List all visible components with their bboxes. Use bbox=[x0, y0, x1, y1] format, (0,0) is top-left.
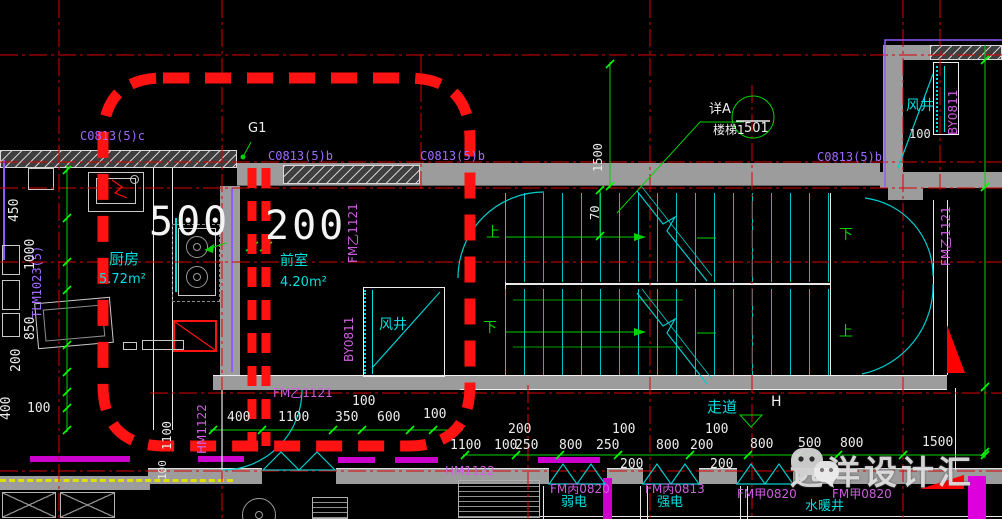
room-anteroom-area: 4.20m² bbox=[280, 276, 327, 289]
door-code: FM甲0820 bbox=[737, 488, 797, 500]
corridor-mark: H bbox=[771, 395, 782, 409]
louver-code: BY0811 bbox=[947, 90, 959, 135]
highlight-dim-200: 200 bbox=[265, 206, 346, 246]
dim: 400 bbox=[227, 411, 250, 424]
stair-break-line bbox=[637, 293, 707, 384]
room-plumb-shaft: 水暖井 bbox=[805, 500, 844, 513]
callout-target: 楼梯1 bbox=[713, 124, 745, 136]
door-code: FM丙0820 bbox=[550, 483, 610, 495]
stair-break-line bbox=[637, 191, 707, 281]
callout-detail: 详A bbox=[709, 103, 731, 116]
room-anteroom: 前室 bbox=[280, 254, 308, 268]
door-code: HM1122 bbox=[445, 465, 495, 477]
door-code: HM1122 bbox=[196, 404, 208, 454]
wechat-icon bbox=[790, 446, 840, 490]
floor-plan-canvas: G1 C0813(5)c C0813(5)b C0813(5)b C0813(5… bbox=[0, 0, 1002, 519]
dim: 800 bbox=[559, 439, 582, 452]
dim: 100 bbox=[423, 408, 446, 421]
dim: 200 bbox=[508, 423, 531, 436]
window-code: C0813(5)c bbox=[80, 130, 145, 142]
dim: 450 bbox=[8, 199, 21, 222]
window-code: C0813(5)b bbox=[817, 151, 882, 163]
dim: 1100 bbox=[161, 421, 173, 450]
dim: 1000 bbox=[24, 239, 37, 270]
g1-label: G1 bbox=[248, 122, 266, 135]
stair-down-label: 下 bbox=[839, 228, 853, 242]
dim: 250 bbox=[596, 439, 619, 452]
dim: 100 bbox=[612, 423, 635, 436]
dim: 800 bbox=[656, 439, 679, 452]
dim: 200 bbox=[620, 458, 643, 471]
dim: 850 bbox=[24, 317, 37, 340]
dim: 200 bbox=[710, 458, 733, 471]
dim: 100 bbox=[157, 460, 168, 480]
dim: 100 bbox=[909, 128, 931, 140]
louver-code: BY0811 bbox=[343, 317, 355, 362]
highlight-dim-500: 500 bbox=[149, 202, 230, 242]
room-kitchen-area: 5.72m² bbox=[99, 273, 146, 286]
room-shaft-top: 风井 bbox=[906, 99, 934, 113]
dim: 1100 bbox=[450, 439, 481, 452]
dim: 100 bbox=[352, 395, 375, 408]
window-code: C0813(5)b bbox=[420, 150, 485, 162]
callout-sheet: 501 bbox=[744, 122, 769, 135]
stair-down-label: 下 bbox=[483, 321, 497, 335]
dim: 400 bbox=[0, 397, 13, 420]
room-kitchen: 厨房 bbox=[109, 252, 139, 267]
dim: 100 bbox=[27, 402, 50, 415]
door-code: FM丙0813 bbox=[645, 483, 705, 495]
door-code: FM乙1121 bbox=[347, 203, 359, 263]
door-code: FM乙1121 bbox=[940, 206, 952, 266]
dim: 350 bbox=[335, 411, 358, 424]
dim: 1500 bbox=[592, 143, 604, 172]
stair-up-label: 上 bbox=[486, 226, 500, 240]
window-code: C0813(5)b bbox=[268, 150, 333, 162]
dim: 100 bbox=[494, 439, 517, 452]
dim: 1100 bbox=[278, 411, 309, 424]
room-weak-elec: 弱电 bbox=[561, 496, 587, 509]
dim: 200 bbox=[690, 439, 713, 452]
room-shaft-left: 风井 bbox=[379, 318, 407, 332]
watermark: 远洋设计汇 bbox=[790, 446, 975, 494]
dim: 800 bbox=[750, 438, 773, 451]
room-corridor: 走道 bbox=[707, 400, 737, 415]
dim: 100 bbox=[705, 423, 728, 436]
dim: 200 bbox=[10, 349, 23, 372]
room-strong-elec: 强电 bbox=[657, 496, 683, 509]
door-code: FM乙1121 bbox=[273, 387, 333, 399]
dim: 600 bbox=[377, 411, 400, 424]
dim: 250 bbox=[515, 439, 538, 452]
stair-up-label: 上 bbox=[839, 325, 853, 339]
dim: 70 bbox=[589, 206, 601, 220]
